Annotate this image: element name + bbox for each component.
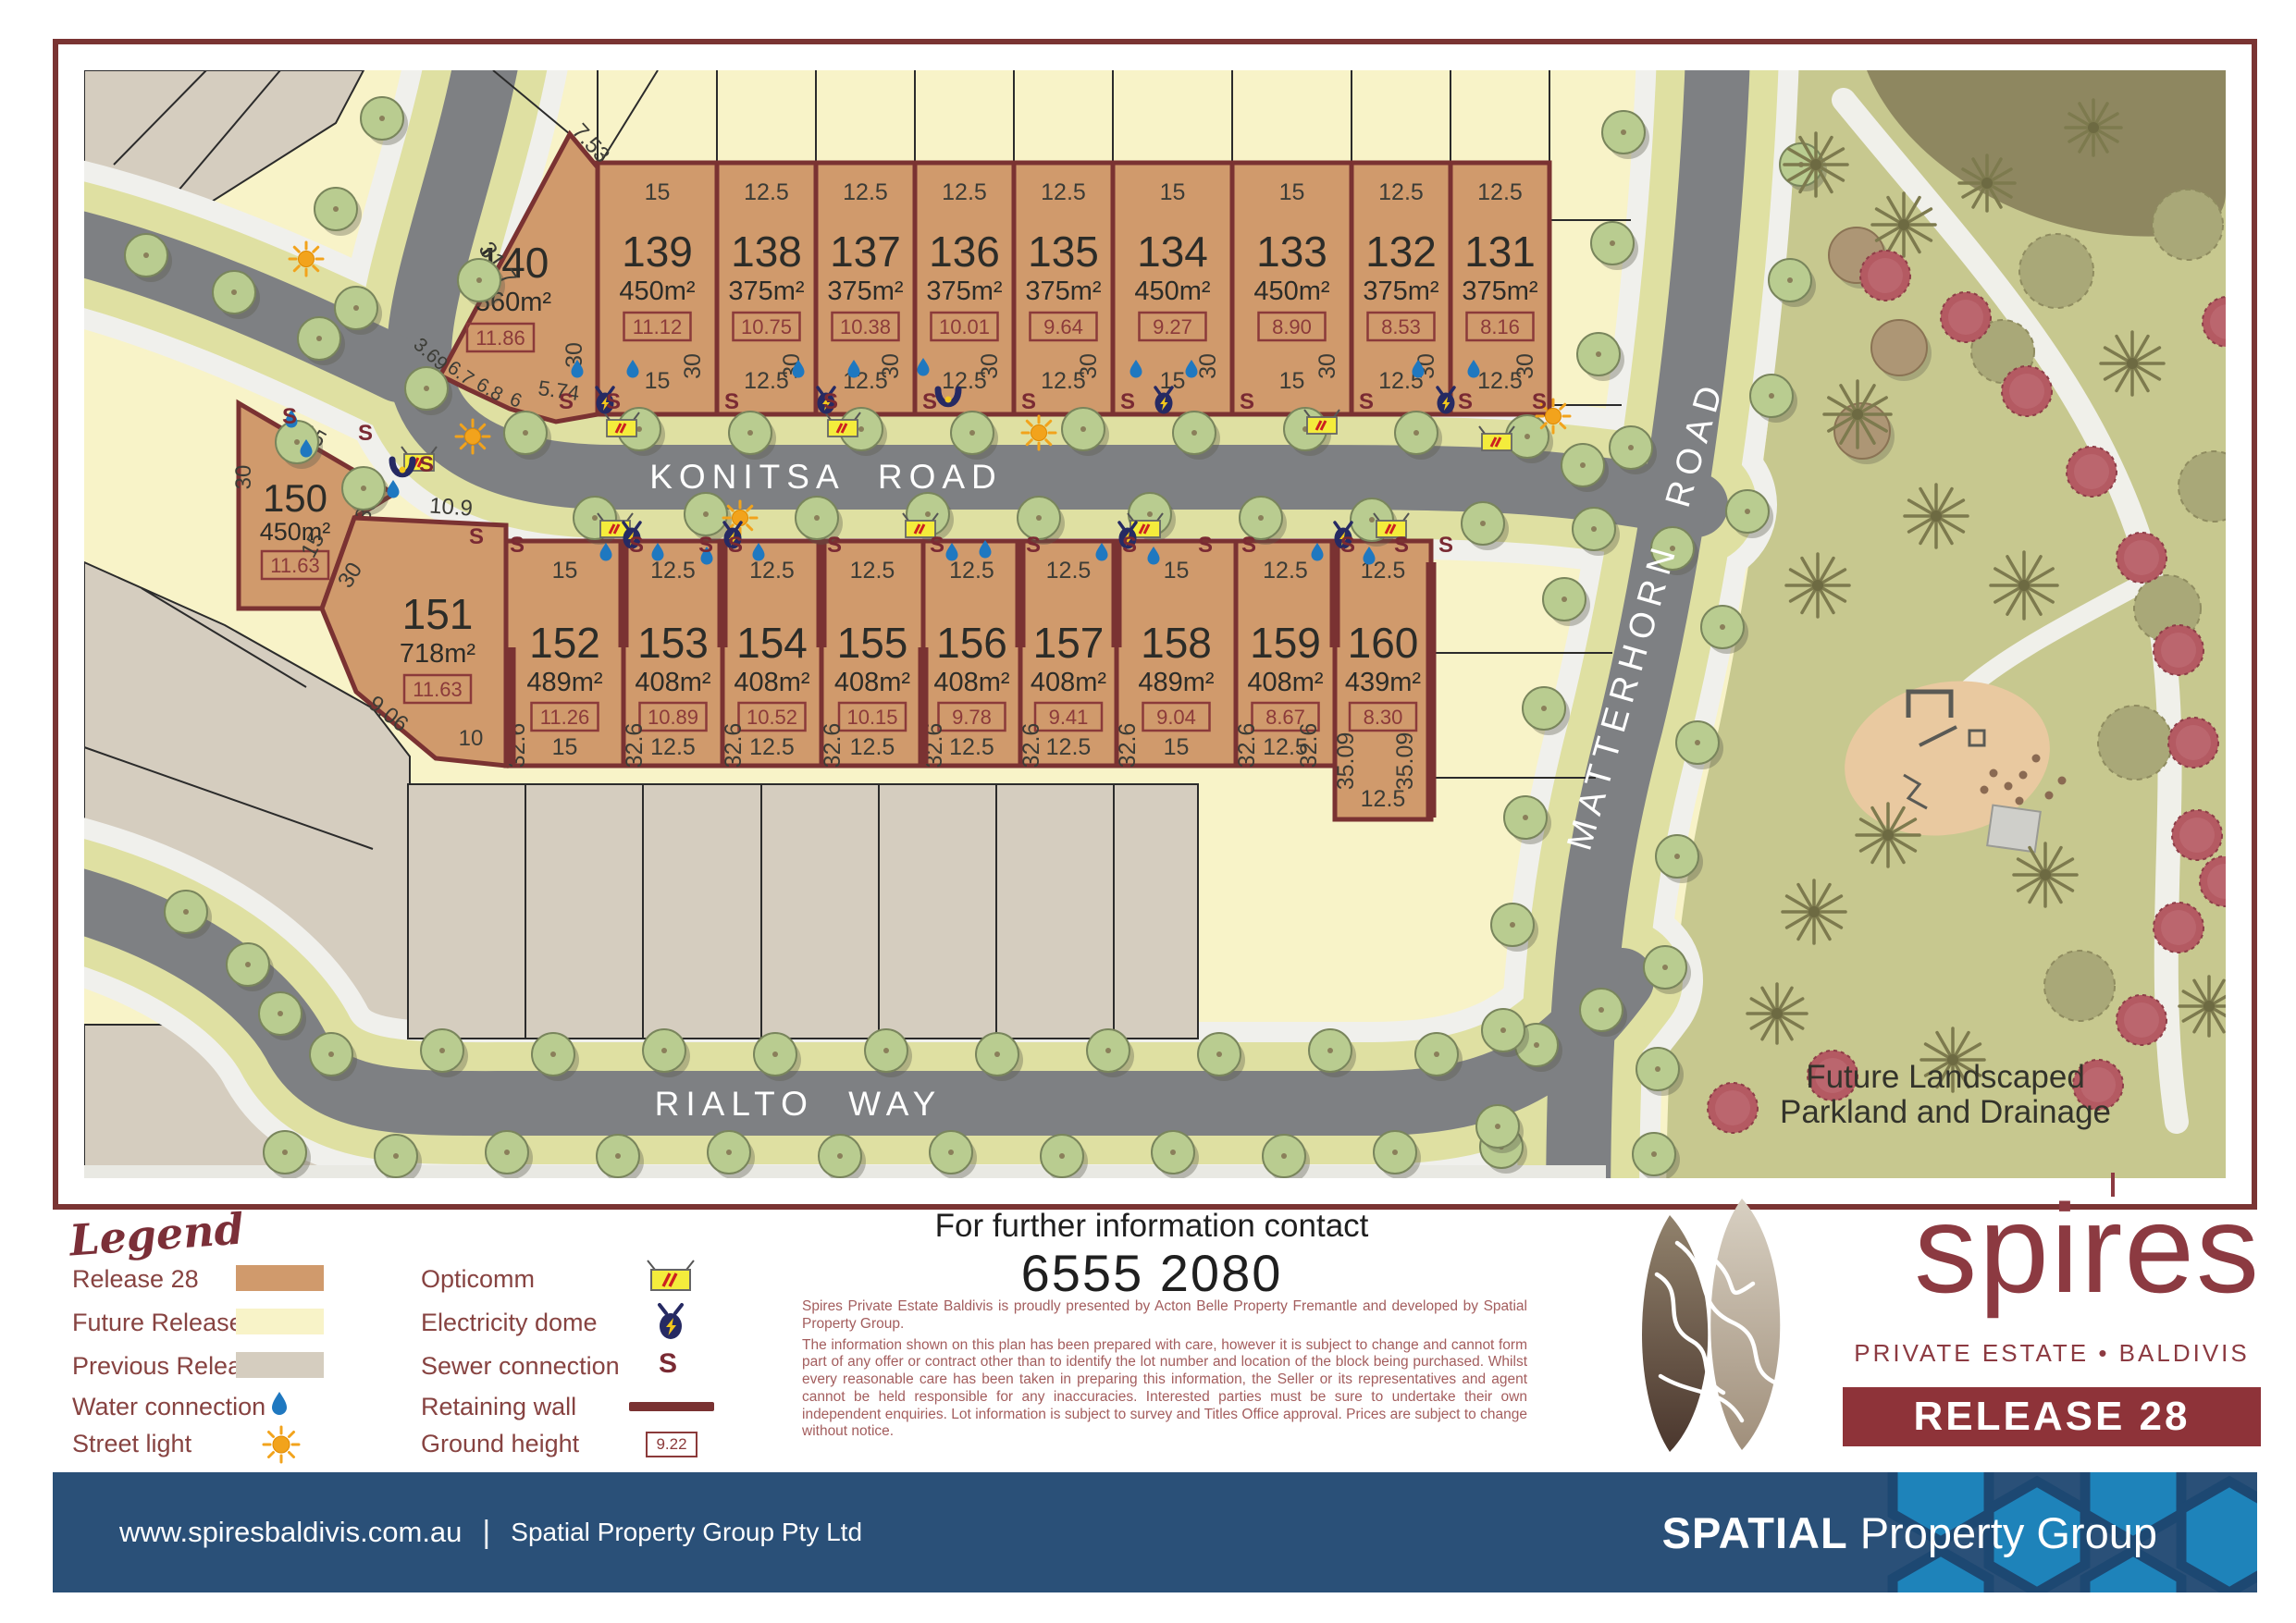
lot-131: 12.5131375m²8.163012.5 [1450, 163, 1549, 414]
lot-bottom-dimension: 12.5 [942, 368, 987, 394]
sewer-icon: S [1458, 389, 1473, 414]
lot-156: 12.5156408m²9.7832.612.5 [921, 541, 1020, 768]
lot-area: 375m² [728, 277, 805, 306]
sewer-icon: S [510, 533, 525, 558]
ground-height-value: 10.15 [846, 706, 897, 729]
lot-top-dimension: 12.5 [843, 179, 888, 205]
estate-plan-page: 15139450m²11.12301512.5138375m²10.753012… [0, 0, 2296, 1623]
bush-icon [2044, 951, 2115, 1021]
sewer-icon: S [922, 389, 937, 414]
lot-number: 154 [736, 619, 808, 667]
sewer-icon: S [1340, 533, 1355, 558]
flowering-shrub-icon [1708, 1083, 1758, 1133]
lot-155: 12.5155408m²10.1532.612.5 [820, 541, 923, 768]
ground-height-value: 10.75 [741, 315, 792, 338]
lot-area: 408m² [1031, 668, 1107, 697]
legend-dome-label: Electricity dome [421, 1309, 598, 1337]
legend-release28-label: Release 28 [72, 1265, 199, 1294]
lot-area: 450m² [1253, 277, 1330, 306]
lot-number: 136 [929, 227, 1000, 276]
flowering-shrub-icon [2172, 810, 2222, 860]
sewer-icon: S [659, 1348, 677, 1380]
lot-area: 375m² [1025, 277, 1102, 306]
lot-area: 408m² [1247, 668, 1324, 697]
sewer-icon: S [1240, 389, 1254, 414]
lot-132: 12.5132375m²8.533012.5 [1352, 163, 1450, 414]
lot-top-dimension: 12.5 [1263, 558, 1308, 584]
lot-top-dimension: 15 [552, 558, 578, 584]
lot-134: 15134450m²9.273015 [1113, 163, 1232, 414]
lot-top-dimension: 12.5 [1477, 179, 1523, 205]
lot-area: 489m² [526, 668, 603, 697]
lot-number: 152 [529, 619, 600, 667]
ground-height-value: 11.26 [540, 706, 589, 729]
future-release-swatch [236, 1309, 324, 1334]
flowering-shrub-icon [2168, 718, 2218, 768]
lot-side-dimension: 32.6 [1115, 723, 1141, 768]
lot-top-dimension: 12.5 [850, 558, 895, 584]
lot-number: 156 [936, 619, 1007, 667]
lot-area: 408m² [834, 668, 911, 697]
spatial-logo-rest: Property Group [1860, 1507, 2157, 1558]
ground-height-value: 10.38 [840, 315, 891, 338]
sewer-icon: S [724, 389, 739, 414]
lot-side-dimension: 32.6 [622, 723, 648, 768]
flowering-shrub-icon [1941, 292, 1991, 342]
flowering-shrub-icon [2154, 625, 2203, 675]
spatial-logo: SPATIAL Property Group [1662, 1472, 2157, 1592]
lot-area: 408m² [734, 668, 810, 697]
lot-number: 135 [1028, 227, 1099, 276]
lot-side-dimension: 30 [1195, 353, 1221, 379]
lot-top-dimension: 12.5 [1046, 558, 1092, 584]
lot-152: 15152489m²11.2632.615 [504, 541, 623, 768]
release28-swatch [236, 1265, 324, 1291]
lot-top-dimension: 12.5 [942, 179, 987, 205]
lot-top-dimension: 12.5 [650, 558, 696, 584]
lot-bottom-dimension: 15 [645, 368, 671, 394]
flowering-shrub-icon [1860, 251, 1910, 301]
lot-bottom-dimension: 12.5 [749, 734, 795, 760]
lot-area: 375m² [1462, 277, 1538, 306]
sewer-icon: S [1241, 533, 1256, 558]
legend-streetlight-label: Street light [72, 1430, 191, 1458]
bush-icon [2153, 190, 2223, 260]
disclaimer: Spires Private Estate Baldivis is proudl… [802, 1298, 1527, 1445]
lot-area: 408m² [635, 668, 711, 697]
contact-phone: 6555 2080 [777, 1243, 1526, 1303]
lot-number: 131 [1464, 227, 1536, 276]
lot-159: 12.5159408m²8.6732.632.612.5 [1234, 541, 1335, 768]
footer-separator: | [482, 1515, 490, 1551]
lot-area: 439m² [1345, 668, 1422, 697]
parkland-label-line1: Future Landscaped [1806, 1059, 2085, 1095]
lot-top-dimension: 12.5 [744, 179, 789, 205]
bush-icon [2019, 234, 2093, 308]
sewer-icon: S [1026, 533, 1041, 558]
lot-number: 137 [830, 227, 901, 276]
sewer-icon: S [606, 389, 621, 414]
lot-number: 151 [402, 590, 474, 638]
lot-bottom-dimension: 12.5 [850, 734, 895, 760]
lot-side-dimension: 30 [1315, 353, 1340, 379]
lot-area: 489m² [1138, 668, 1215, 697]
sewer-icon: S [282, 404, 297, 429]
lot-top-dimension: 15 [1279, 179, 1305, 205]
ground-height-value: 9.78 [952, 706, 992, 729]
lot-number: 155 [837, 619, 908, 667]
ground-height-value: 8.90 [1272, 315, 1312, 338]
ground-height-icon: 9.22 [646, 1432, 697, 1457]
sewer-icon: S [1359, 389, 1374, 414]
lot-bottom-dimension: 12.5 [650, 734, 696, 760]
lot-top-dimension: 12.5 [749, 558, 795, 584]
lot-number: 133 [1256, 227, 1327, 276]
lot-bottom-dimension: 12.5 [1263, 734, 1308, 760]
lot-side-dimension: 30 [680, 353, 706, 379]
sewer-icon: S [1198, 533, 1213, 558]
sewer-icon: S [419, 452, 434, 477]
lot-bottom-dimension: 12.5 [1041, 368, 1086, 394]
lot-bottom-dimension: 12.5 [949, 734, 994, 760]
lot-bottom-dimension: 12.5 [1361, 786, 1406, 812]
sewer-icon: S [1122, 533, 1137, 558]
lot-top-dimension: 15 [1164, 558, 1190, 584]
lot-side-dimension: 32.6 [820, 723, 846, 768]
lot-area: 450m² [619, 277, 696, 306]
lot-side-dimension: 32.6 [1018, 723, 1044, 768]
flowering-shrub-icon [2154, 903, 2203, 953]
lot-number: 158 [1141, 619, 1212, 667]
lot-154: 12.5154408m²10.5232.612.5 [721, 541, 821, 768]
flowering-shrub-icon [2067, 447, 2117, 497]
lot-bottom-dimension: 15 [1164, 734, 1190, 760]
lot-133: 15133450m²8.903015 [1232, 163, 1352, 414]
sewer-icon: S [698, 533, 713, 558]
lot-area: 450m² [1134, 277, 1211, 306]
footer-company: Spatial Property Group Pty Ltd [511, 1518, 862, 1547]
sewer-icon: S [823, 389, 838, 414]
lot-area: 408m² [933, 668, 1010, 697]
spatial-logo-bold: SPATIAL [1662, 1507, 1848, 1558]
lot-bottom-dimension: 12.5 [744, 368, 789, 394]
lot-139: 15139450m²11.123015 [598, 163, 717, 414]
lot-137: 12.5137375m²10.383012.5 [816, 163, 915, 414]
lot-number: 138 [731, 227, 802, 276]
lot-area: 375m² [827, 277, 904, 306]
spires-wordmark: spires [1843, 1186, 2261, 1311]
bush-icon [2098, 706, 2172, 780]
disclaimer-paragraph-1: Spires Private Estate Baldivis is proudl… [802, 1298, 1527, 1334]
flowering-shrub-icon [2002, 366, 2052, 416]
lot-side-dimension: 32.6 [721, 723, 747, 768]
lot-number: 139 [622, 227, 693, 276]
lot-side-dimension: 32.6 [1234, 723, 1260, 768]
disclaimer-paragraph-2: The information shown on this plan has b… [802, 1337, 1527, 1442]
lot-135: 12.5135375m²9.643012.5 [1014, 163, 1113, 414]
legend-opticomm-label: Opticomm [421, 1265, 535, 1294]
sewer-icon: S [629, 533, 644, 558]
lot-dimension: 10.9 [428, 493, 473, 521]
sewer-icon: S [827, 533, 842, 558]
lot-number: 153 [637, 619, 709, 667]
lot-bottom-dimension: 15 [1279, 368, 1305, 394]
ground-height-value: 9.64 [1043, 315, 1083, 338]
lot-bottom-dimension: 15 [552, 734, 578, 760]
sewer-icon: S [1532, 389, 1547, 414]
lot-number: 132 [1365, 227, 1437, 276]
sewer-icon: S [559, 389, 574, 414]
map-frame: 15139450m²11.12301512.5138375m²10.753012… [53, 39, 2257, 1210]
brand-tagline: PRIVATE ESTATE • BALDIVIS [1843, 1339, 2261, 1368]
ground-height-value: 8.30 [1364, 706, 1403, 729]
lot-side-dimension: 30 [231, 465, 256, 490]
street-light-icon [261, 1424, 302, 1465]
lot-bottom-dimension: 12.5 [1046, 734, 1092, 760]
lot-top-dimension: 12.5 [1378, 179, 1424, 205]
lot-157: 12.5157408m²9.4132.612.5 [1018, 541, 1117, 768]
legend-title: Legend [68, 1203, 245, 1265]
sewer-icon: S [1021, 389, 1036, 414]
lot-area: 375m² [926, 277, 1003, 306]
ground-height-value: 8.16 [1480, 315, 1520, 338]
contact-heading: For further information contact [777, 1208, 1526, 1245]
opticomm-icon [643, 1258, 698, 1297]
lot-number: 150 [263, 476, 327, 520]
legend-ground-label: Ground height [421, 1430, 579, 1458]
sewer-icon: S [1394, 533, 1409, 558]
lot-number: 134 [1137, 227, 1208, 276]
lot-153: 12.5153408m²10.8932.612.5 [622, 541, 722, 768]
electricity-dome-icon [650, 1302, 691, 1343]
sewer-icon: S [728, 533, 743, 558]
ground-height-value: 8.53 [1381, 315, 1421, 338]
street-light-icon [1022, 416, 1055, 449]
street-light-icon [290, 242, 323, 276]
parkland-label-line2: Parkland and Drainage [1780, 1094, 2111, 1130]
footer-website: www.spiresbaldivis.com.au [119, 1516, 462, 1549]
legend-future-label: Future Release [72, 1309, 243, 1337]
light-leaf [1710, 1199, 1780, 1450]
konitsa-road-label: KONITSA ROAD [649, 458, 1003, 496]
release-banner: RELEASE 28 [1843, 1387, 2261, 1446]
water-drop-icon [268, 1389, 290, 1420]
lot-number: 157 [1033, 619, 1105, 667]
estate-map: 15139450m²11.12301512.5138375m²10.753012… [58, 44, 2252, 1204]
lot-area: 718m² [400, 639, 476, 669]
lot-number: 159 [1250, 619, 1321, 667]
footer-bar: www.spiresbaldivis.com.au | Spatial Prop… [53, 1472, 2257, 1592]
sewer-icon: S [1438, 533, 1453, 558]
lot-bottom-dimension: 12.5 [1477, 368, 1523, 394]
lot-bottom-dimension: 15 [1160, 368, 1186, 394]
legend-wall-label: Retaining wall [421, 1393, 576, 1421]
sewer-icon: S [469, 524, 484, 549]
sewer-icon: S [358, 421, 373, 446]
footer-left: www.spiresbaldivis.com.au | Spatial Prop… [119, 1472, 862, 1592]
lot-number: 160 [1348, 619, 1419, 667]
lot-top-dimension: 15 [645, 179, 671, 205]
sewer-icon: S [930, 533, 944, 558]
lot-160: 12.5160439m²8.3035.0935.0912.5 [1333, 541, 1431, 819]
previous-release-swatch [236, 1352, 324, 1378]
ground-height-value: 9.41 [1049, 706, 1089, 729]
lot-dimension: 10 [459, 726, 484, 751]
ground-height-value: 10.52 [747, 706, 797, 729]
ground-height-value: 9.04 [1156, 706, 1196, 729]
dark-leaf [1642, 1215, 1708, 1452]
retaining-wall-icon [629, 1402, 714, 1411]
lot-158: 15158489m²9.0432.615 [1115, 541, 1236, 768]
spires-leaf-logo [1603, 1195, 1842, 1454]
flowering-shrub-icon [2117, 995, 2166, 1045]
lot-top-dimension: 12.5 [949, 558, 994, 584]
ground-height-value: 11.86 [475, 326, 525, 350]
ground-height-value: 11.63 [413, 678, 462, 701]
flowering-shrub-icon [2117, 533, 2166, 583]
legend-water-label: Water connection [72, 1393, 265, 1421]
legend-sewer-label: Sewer connection [421, 1352, 620, 1381]
ground-height-value: 9.27 [1153, 315, 1192, 338]
lot-area: 375m² [1363, 277, 1439, 306]
sewer-icon: S [1120, 389, 1135, 414]
lot-side-dimension: 35.09 [1392, 732, 1418, 791]
lot-top-dimension: 12.5 [1041, 179, 1086, 205]
rialto-way-label: RIALTO WAY [655, 1085, 943, 1123]
lot-side-dimension: 35.09 [1333, 732, 1359, 791]
street-light-icon [456, 420, 489, 453]
lot-top-dimension: 15 [1160, 179, 1186, 205]
ground-height-value: 10.89 [648, 706, 698, 729]
lot-136: 12.5136375m²10.013012.5 [915, 163, 1014, 414]
ground-height-value: 10.01 [939, 315, 990, 338]
ground-height-value: 11.12 [633, 315, 682, 338]
